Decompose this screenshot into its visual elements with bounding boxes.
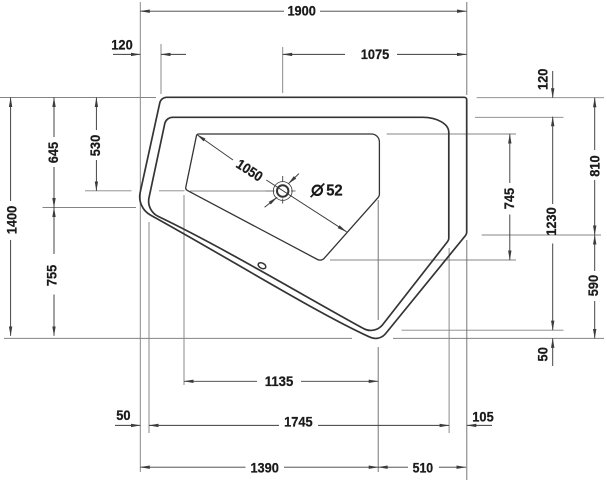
svg-text:1400: 1400 bbox=[4, 206, 20, 235]
svg-text:120: 120 bbox=[111, 37, 133, 53]
svg-text:1900: 1900 bbox=[287, 3, 316, 19]
svg-text:1135: 1135 bbox=[265, 373, 294, 389]
svg-text:530: 530 bbox=[87, 135, 103, 157]
svg-text:1075: 1075 bbox=[361, 46, 390, 62]
svg-text:510: 510 bbox=[413, 459, 434, 475]
svg-text:50: 50 bbox=[534, 347, 550, 361]
svg-text:745: 745 bbox=[501, 188, 517, 210]
svg-text:590: 590 bbox=[585, 275, 601, 297]
svg-text:105: 105 bbox=[472, 408, 494, 424]
svg-text:1050: 1050 bbox=[233, 156, 266, 185]
svg-text:755: 755 bbox=[44, 265, 60, 287]
svg-text:52: 52 bbox=[326, 182, 343, 199]
svg-text:1230: 1230 bbox=[543, 207, 559, 236]
svg-text:50: 50 bbox=[116, 407, 130, 423]
svg-text:1390: 1390 bbox=[250, 460, 279, 476]
svg-text:645: 645 bbox=[45, 142, 61, 164]
svg-text:1745: 1745 bbox=[284, 413, 313, 429]
svg-text:120: 120 bbox=[534, 68, 550, 90]
svg-text:810: 810 bbox=[586, 155, 602, 177]
